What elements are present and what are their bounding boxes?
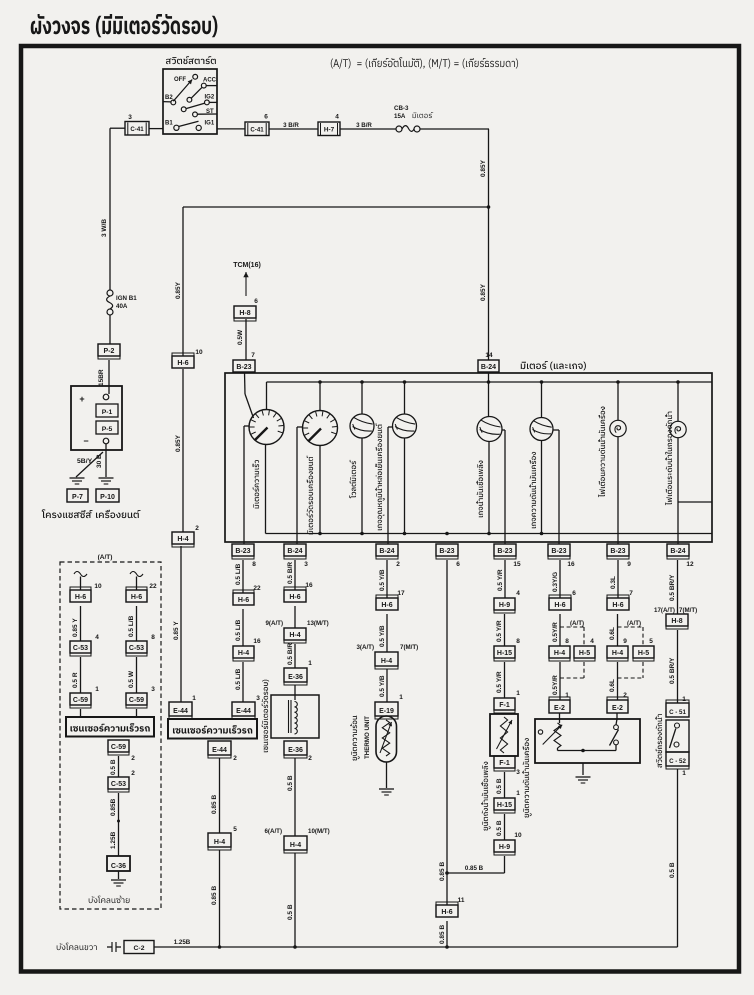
svg-text:0.3Y/G: 0.3Y/G [552,572,559,592]
svg-text:B-23: B-23 [497,548,512,555]
svg-text:E-2: E-2 [554,705,565,712]
svg-text:4: 4 [95,634,99,641]
svg-text:H-4: H-4 [290,842,301,849]
svg-text:13(M/T): 13(M/T) [307,620,329,627]
svg-text:7: 7 [629,590,633,597]
svg-text:H-5: H-5 [579,650,590,657]
svg-text:15BR: 15BR [98,369,105,386]
svg-text:C - 52: C - 52 [669,758,686,765]
svg-text:H-6: H-6 [75,594,86,601]
svg-text:0.5 Y/B: 0.5 Y/B [379,569,386,591]
svg-text:E-2: E-2 [612,705,623,712]
svg-text:H-6: H-6 [289,594,300,601]
svg-text:0.5Y/R: 0.5Y/R [552,622,559,642]
svg-text:10: 10 [514,832,522,839]
svg-text:0.5 BR/Y: 0.5 BR/Y [669,574,676,601]
svg-text:H-6: H-6 [554,602,565,609]
svg-text:0.85 Y: 0.85 Y [173,621,180,640]
svg-text:B1: B1 [165,121,173,127]
svg-text:1: 1 [399,694,403,701]
svg-text:(A/T): (A/T) [627,620,641,627]
svg-text:8: 8 [565,638,569,645]
svg-text:3(A/T): 3(A/T) [356,644,374,651]
svg-text:0.5 W: 0.5 W [128,670,135,688]
svg-text:TCM(16): TCM(16) [233,262,261,269]
svg-text:1: 1 [682,770,686,777]
svg-text:H-4: H-4 [177,536,188,543]
svg-text:17: 17 [397,590,405,597]
svg-text:2: 2 [195,525,199,532]
svg-text:H-9: H-9 [499,602,510,609]
svg-text:0.5 Y/B: 0.5 Y/B [379,625,386,647]
svg-text:P-1: P-1 [102,409,113,416]
svg-text:E-36: E-36 [288,674,303,681]
svg-text:0.85Y: 0.85Y [480,283,487,301]
svg-text:3: 3 [151,686,155,693]
svg-text:3 B/R: 3 B/R [356,122,372,129]
svg-text:0.85Y: 0.85Y [175,281,182,299]
svg-text:0.5 L/B: 0.5 L/B [235,563,242,585]
svg-text:H-4: H-4 [214,839,225,846]
svg-text:F-1: F-1 [499,702,510,709]
svg-text:P-10: P-10 [100,494,115,501]
svg-text:9(A/T): 9(A/T) [265,620,283,627]
svg-text:+: + [79,394,84,404]
svg-text:0.3L: 0.3L [610,576,617,589]
svg-text:0.5 B: 0.5 B [496,820,503,836]
svg-text:5: 5 [233,826,237,833]
svg-text:H-4: H-4 [381,658,392,665]
svg-text:1: 1 [95,686,99,693]
svg-text:E-44: E-44 [236,708,251,715]
svg-text:12: 12 [686,561,694,568]
svg-text:0.5 Y/R: 0.5 Y/R [497,569,504,591]
svg-text:15: 15 [513,561,521,568]
svg-text:10: 10 [195,349,203,356]
svg-text:H-15: H-15 [497,802,512,809]
svg-text:9: 9 [623,638,627,645]
svg-text:1.25B: 1.25B [174,939,191,946]
svg-text:10: 10 [94,583,102,590]
svg-text:P-5: P-5 [102,426,113,433]
svg-text:6: 6 [456,561,460,568]
svg-text:6(A/T): 6(A/T) [264,828,282,835]
svg-text:0.85 B: 0.85 B [465,865,484,872]
svg-text:IG1: IG1 [205,121,215,127]
svg-text:0.5 R: 0.5 R [72,672,79,688]
svg-text:0.85Y: 0.85Y [480,159,487,177]
svg-text:B-23: B-23 [235,548,250,555]
svg-text:3 W/B: 3 W/B [101,219,108,237]
svg-text:1: 1 [516,790,520,797]
svg-text:4: 4 [590,638,594,645]
svg-text:0.5Y/R: 0.5Y/R [552,675,559,695]
svg-text:C-41: C-41 [250,126,264,133]
svg-text:0.5W: 0.5W [237,329,244,345]
svg-text:9: 9 [627,561,631,568]
svg-text:B-23: B-23 [439,548,454,555]
svg-text:B-24: B-24 [287,548,302,555]
svg-text:7(M/T): 7(M/T) [679,607,697,614]
svg-text:16: 16 [305,582,313,589]
svg-text:C-36: C-36 [111,863,126,870]
svg-text:2: 2 [623,692,627,699]
svg-text:1.25B: 1.25B [110,831,117,849]
svg-text:H-4: H-4 [612,650,623,657]
svg-text:H-7: H-7 [324,126,335,133]
svg-text:17(A/T): 17(A/T) [654,607,675,614]
svg-text:22: 22 [149,583,157,590]
svg-text:H-4: H-4 [289,632,300,639]
svg-text:0.85 B: 0.85 B [439,925,446,944]
svg-text:30 B: 30 B [96,454,103,468]
svg-text:B-24: B-24 [670,548,685,555]
svg-text:16: 16 [567,561,575,568]
svg-text:H-8: H-8 [671,618,682,625]
svg-text:H-9: H-9 [499,844,510,851]
svg-text:14: 14 [485,352,493,359]
svg-text:0.5 BR/Y: 0.5 BR/Y [669,657,676,684]
svg-text:H-6: H-6 [441,909,452,916]
svg-text:E-19: E-19 [379,708,394,715]
svg-text:E-44: E-44 [173,708,188,715]
svg-text:4: 4 [335,114,339,121]
svg-text:6: 6 [254,298,258,305]
svg-text:2: 2 [131,770,135,777]
svg-text:C-53: C-53 [111,781,126,788]
svg-text:B-24: B-24 [379,548,394,555]
svg-text:E-36: E-36 [288,747,303,754]
svg-text:0.5 L/B: 0.5 L/B [128,615,135,637]
svg-text:40A: 40A [116,303,128,310]
svg-text:B-23: B-23 [610,548,625,555]
svg-text:0.85 B: 0.85 B [439,862,446,881]
svg-text:0.5 B: 0.5 B [669,862,676,878]
svg-text:0.5 B: 0.5 B [110,759,117,775]
svg-text:7: 7 [251,352,255,359]
svg-text:3 B/R: 3 B/R [283,122,299,129]
svg-text:0.85 B: 0.85 B [211,886,218,905]
svg-text:H-6: H-6 [177,360,188,367]
svg-text:H-15: H-15 [497,650,512,657]
svg-text:2: 2 [308,755,312,762]
svg-text:15A: 15A [394,113,406,120]
svg-text:C-53: C-53 [73,645,88,652]
svg-text:H-8: H-8 [239,310,250,317]
svg-text:P-7: P-7 [72,494,83,501]
svg-text:0.85 Y: 0.85 Y [72,618,79,637]
svg-text:0.5 L/B: 0.5 L/B [235,668,242,690]
svg-text:8: 8 [516,638,520,645]
svg-text:B-23: B-23 [551,548,566,555]
svg-text:C-53: C-53 [129,645,144,652]
svg-text:3: 3 [256,695,260,702]
svg-text:1: 1 [308,660,312,667]
svg-text:C - 51: C - 51 [669,709,686,716]
svg-text:H-5: H-5 [638,650,649,657]
svg-text:2: 2 [396,561,400,568]
svg-text:1: 1 [565,692,569,699]
svg-text:H-6: H-6 [381,602,392,609]
svg-text:0.5 B/R: 0.5 B/R [287,562,294,584]
svg-text:8: 8 [151,634,155,641]
svg-text:1: 1 [516,690,520,697]
svg-text:(A/T): (A/T) [98,554,113,561]
svg-text:3: 3 [128,114,132,121]
svg-text:2: 2 [131,755,135,762]
svg-text:F-1: F-1 [499,760,510,767]
svg-text:0.85B: 0.85B [110,798,117,816]
svg-text:11: 11 [458,897,465,904]
svg-text:0.6L: 0.6L [609,627,616,640]
svg-text:−: − [83,436,88,446]
svg-text:5B/Y: 5B/Y [77,458,93,465]
svg-text:H-4: H-4 [554,650,565,657]
svg-text:H-6: H-6 [131,594,142,601]
svg-text:C-59: C-59 [111,744,126,751]
svg-text:0.6L: 0.6L [609,679,616,692]
svg-text:4: 4 [516,590,520,597]
svg-text:6: 6 [264,114,268,121]
svg-text:0.5 L/B: 0.5 L/B [235,619,242,641]
svg-text:16: 16 [253,638,261,645]
svg-text:CB-3: CB-3 [394,105,409,112]
svg-text:C-41: C-41 [130,126,144,133]
svg-text:0.5 Y/R: 0.5 Y/R [496,671,503,693]
svg-text:B-23: B-23 [236,364,251,371]
svg-text:2: 2 [233,755,237,762]
svg-text:OFF: OFF [174,77,186,83]
svg-text:IGN B1: IGN B1 [116,295,137,302]
svg-text:3: 3 [304,561,308,568]
svg-text:22: 22 [253,585,261,592]
svg-text:B-24: B-24 [481,364,496,371]
svg-text:E-44: E-44 [212,747,227,754]
svg-text:0.85 B: 0.85 B [211,795,218,814]
svg-text:H-6: H-6 [238,597,249,604]
svg-text:ACC: ACC [203,78,217,84]
svg-text:0.5 B: 0.5 B [287,904,294,920]
svg-text:0.5 B: 0.5 B [496,778,503,794]
svg-text:0.5 B: 0.5 B [287,775,294,791]
svg-text:3: 3 [516,769,520,776]
svg-text:8: 8 [252,561,256,568]
svg-text:H-6: H-6 [612,602,623,609]
svg-text:0.5 Y/B: 0.5 Y/B [379,675,386,697]
svg-text:0.85Y: 0.85Y [175,434,182,452]
svg-text:0.5 Y/R: 0.5 Y/R [496,620,503,642]
svg-text:6: 6 [572,590,576,597]
svg-text:7(M/T): 7(M/T) [400,644,418,651]
svg-text:C-59: C-59 [129,697,144,704]
svg-text:C-59: C-59 [73,697,88,704]
svg-text:(A/T): (A/T) [570,620,584,627]
svg-text:THERMO UNIT: THERMO UNIT [364,716,371,759]
svg-text:C-2: C-2 [134,945,145,952]
svg-text:H-4: H-4 [238,650,249,657]
svg-text:10(M/T): 10(M/T) [308,828,330,835]
svg-text:0.5 B/R: 0.5 B/R [287,643,294,665]
svg-text:1: 1 [192,695,196,702]
svg-text:P-2: P-2 [104,348,115,355]
svg-text:5: 5 [649,638,653,645]
